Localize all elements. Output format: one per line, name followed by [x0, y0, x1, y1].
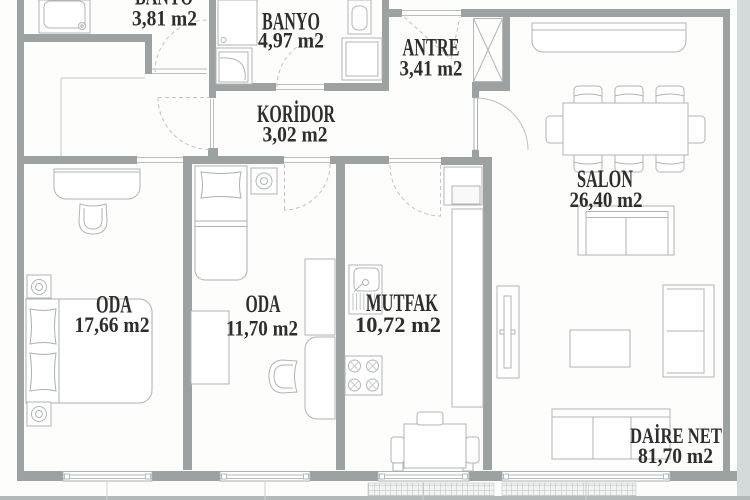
svg-text:3,41 m2: 3,41 m2: [400, 56, 463, 81]
svg-text:10,72 m2: 10,72 m2: [355, 312, 441, 337]
svg-text:26,40 m2: 26,40 m2: [570, 187, 643, 212]
svg-text:3,81 m2: 3,81 m2: [132, 6, 197, 31]
svg-text:ODA: ODA: [246, 291, 281, 318]
svg-text:4,97 m2: 4,97 m2: [258, 28, 324, 53]
svg-text:81,70 m2: 81,70 m2: [638, 443, 713, 468]
svg-text:11,70 m2: 11,70 m2: [226, 316, 298, 341]
svg-text:3,02 m2: 3,02 m2: [263, 122, 328, 147]
svg-text:17,66 m2: 17,66 m2: [75, 312, 150, 337]
